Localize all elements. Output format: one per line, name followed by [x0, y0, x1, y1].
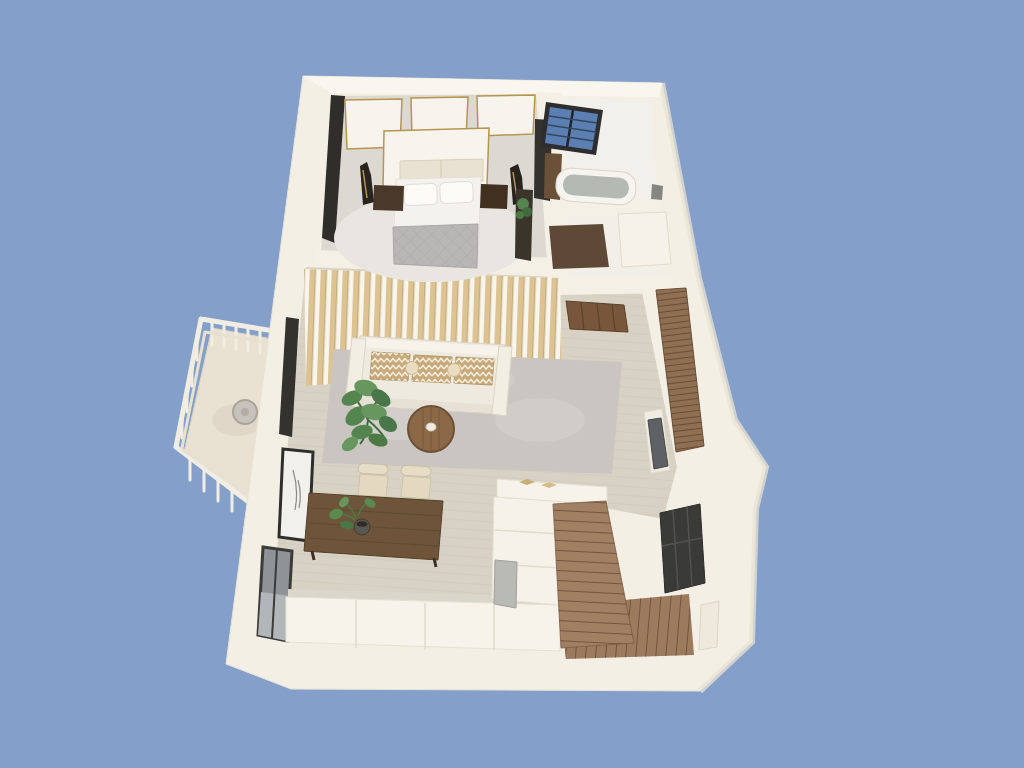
- chair-1-seat: [358, 474, 388, 497]
- nightstand-right: [480, 184, 508, 209]
- apartment-floorplan-render: 3D isometric architectural render of a o…: [0, 0, 1024, 768]
- kitchen-counter-row: [286, 597, 560, 651]
- console-with-plant: [515, 189, 533, 261]
- plant-pot-soil: [357, 521, 368, 527]
- render-stage: 3D isometric architectural render of a o…: [0, 0, 1024, 768]
- balcony-table-center: [241, 408, 249, 416]
- round-coffee-table: [408, 406, 454, 452]
- quilt-stitching: [393, 224, 478, 268]
- console-plant-leaf-3: [516, 211, 524, 219]
- dark-entry-door: [660, 504, 705, 593]
- chair-1-back: [358, 463, 388, 475]
- blue-grid-window: [540, 102, 603, 155]
- coffee-table-cup: [426, 423, 436, 431]
- bolster-pillow-2: [448, 364, 461, 377]
- chair-2-back: [401, 465, 431, 477]
- pillow-left: [404, 183, 438, 205]
- chair-2-seat: [401, 476, 431, 499]
- bathroom-corner-shadow: [651, 184, 663, 200]
- chevron-pattern-1: [370, 352, 410, 381]
- gray-appliance: [494, 560, 517, 608]
- chair-1: [358, 463, 388, 497]
- closet-brown-rug: [549, 224, 609, 269]
- double-bed: [393, 159, 483, 268]
- bathtub: [555, 167, 637, 206]
- bolster-pillow-1: [406, 362, 419, 375]
- pillow-right: [440, 181, 474, 203]
- chair-2: [401, 465, 431, 499]
- closet-storage-block: [618, 212, 671, 267]
- wall-niche: [699, 601, 719, 650]
- nightstand-left: [373, 185, 404, 211]
- entry-door-panel: [660, 504, 705, 593]
- rug-highlight-2: [495, 398, 585, 442]
